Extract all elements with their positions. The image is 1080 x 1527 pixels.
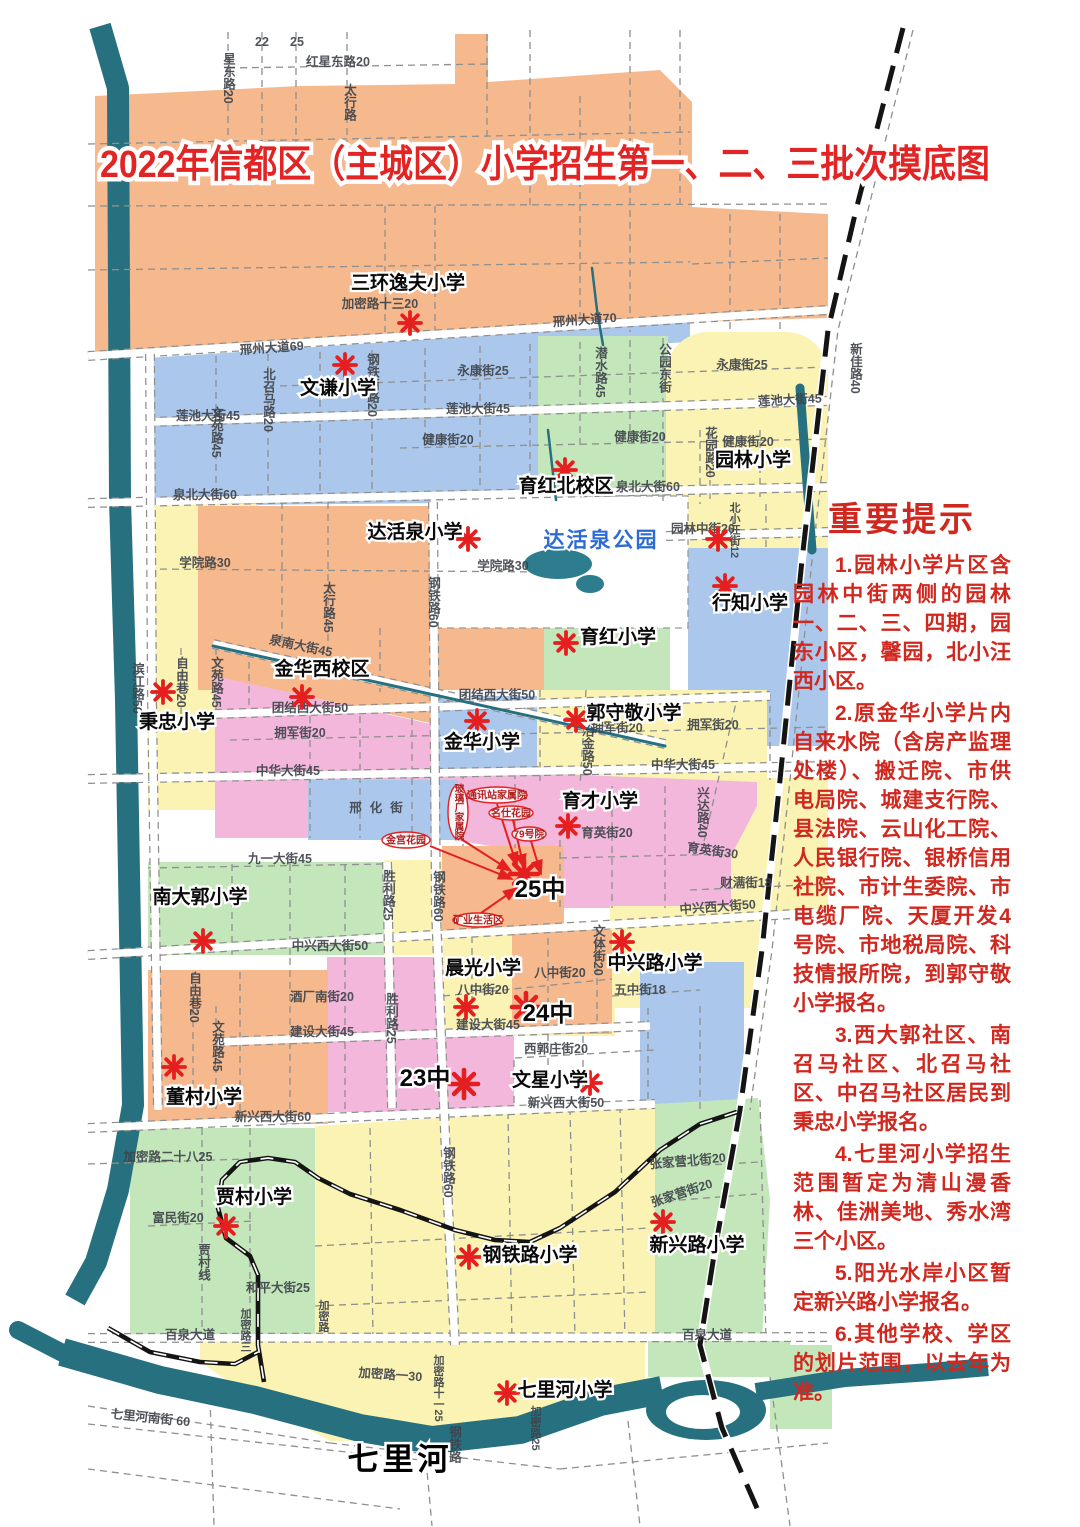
river-label: 七里河 bbox=[348, 1442, 453, 1477]
street-label: 兴达路40 bbox=[695, 785, 709, 837]
street-label: 红星东路20 bbox=[306, 54, 370, 69]
road-minor bbox=[210, 1398, 214, 1526]
road-minor bbox=[628, 1421, 640, 1526]
notice-paragraph: 3.西大郭社区、南召马社区、北召马社区、中召马社区居民到秉忠小学报名。 bbox=[793, 1021, 1011, 1137]
street-label: 加密路三 bbox=[239, 1307, 253, 1352]
compound-label: 名仕花园 bbox=[491, 807, 531, 820]
street-label: 学院路30 bbox=[179, 555, 230, 570]
street-label: 八中街20 bbox=[533, 965, 585, 980]
school-label: 晨光小学 bbox=[445, 956, 521, 979]
street-label: 育英街20 bbox=[581, 825, 632, 840]
street-label: 太行路 bbox=[342, 82, 357, 121]
road-minor bbox=[560, 1443, 828, 1469]
street-label: 莲池大街45 bbox=[446, 401, 510, 416]
street-label: 拥军街20 bbox=[687, 717, 738, 732]
school-label: 育红小学 bbox=[580, 625, 656, 648]
notice-panel: 重要提示 1.园林小学片区含园林中街两侧的园林一、二、三、四期，园东小区，馨园，… bbox=[793, 492, 1011, 1410]
park-pond bbox=[576, 575, 604, 593]
street-label: 拥军街20 bbox=[274, 725, 325, 740]
school-label: 育才小学 bbox=[562, 789, 638, 812]
compound-label: 金宫花园 bbox=[385, 834, 426, 847]
notice-paragraph: 2.原金华小学片内自来水院（含房产监理处楼）、搬迁院、市供电局院、城建支行院、县… bbox=[793, 699, 1011, 1018]
street-label: 百泉大道 bbox=[682, 1327, 733, 1342]
school-label: 文星小学 bbox=[512, 1068, 588, 1091]
notice-paragraph: 1.园林小学片区含园林中街两侧的园林一、二、三、四期，园东小区，馨园，北小汪西小… bbox=[793, 551, 1011, 696]
school-label: 三环逸夫小学 bbox=[351, 271, 465, 294]
map-page: 星东路202225红星东路20太行路加密路十三20邢州大道69邢州大道70新佳路… bbox=[0, 0, 1080, 1527]
street-label: 加密路十三20 bbox=[341, 296, 418, 311]
street-label: 建设大街45 bbox=[290, 1024, 354, 1039]
street-label: 团结西大街50 bbox=[459, 687, 535, 702]
zone-north-district bbox=[95, 34, 828, 354]
notice-paragraph: 6.其他学校、学区的划片范围，以去年为准。 bbox=[793, 1320, 1011, 1407]
zone-gangtielu-district bbox=[315, 1104, 655, 1340]
street-label: 财满街18 bbox=[719, 875, 771, 890]
compound-label: 通讯站家属院 bbox=[467, 789, 527, 802]
school-label: 行知小学 bbox=[711, 591, 788, 614]
school-label: 23中 bbox=[400, 1065, 451, 1092]
street-label: 团结西大街50 bbox=[272, 700, 348, 715]
street-label: 泉北大街60 bbox=[615, 479, 680, 494]
street-label: 健康街20 bbox=[614, 429, 665, 444]
street-label: 星东路20 bbox=[221, 52, 235, 103]
school-label: 秉忠小学 bbox=[139, 710, 215, 733]
park-label: 达活泉公园 bbox=[544, 528, 659, 552]
school-label: 南大郭小学 bbox=[152, 885, 247, 908]
school-label: 郭守敬小学 bbox=[586, 701, 681, 724]
street-label: 中华大街45 bbox=[651, 757, 715, 772]
street-label: 文苑路45 bbox=[210, 1019, 225, 1071]
street-label: 中兴西大街50 bbox=[292, 938, 368, 953]
school-label: 中兴路小学 bbox=[607, 951, 702, 974]
street-label: 北小汪街12 bbox=[728, 501, 742, 559]
street-label: 百泉大道 bbox=[165, 1327, 216, 1342]
school-label: 贾村小学 bbox=[216, 1185, 292, 1208]
street-label: 文体街20 bbox=[591, 923, 606, 975]
street-label: 五中街18 bbox=[614, 982, 665, 997]
school-label: 育红北校区 bbox=[518, 474, 613, 497]
school-label: 文谦小学 bbox=[300, 376, 376, 399]
street-label: 学院路30 bbox=[477, 558, 528, 573]
street-label: 富民街20 bbox=[152, 1210, 203, 1225]
street-label: 泉北大街60 bbox=[172, 487, 237, 502]
street-label: 22 bbox=[255, 35, 269, 49]
notice-paragraph: 4.七里河小学招生范围暂定为清山漫香林、佳洲美地、秀水湾三个小区。 bbox=[793, 1140, 1011, 1256]
school-label: 金华小学 bbox=[443, 730, 520, 753]
school-label: 园林小学 bbox=[715, 448, 791, 471]
compound-label: 79号院 bbox=[513, 828, 544, 841]
street-label: 钢铁路60 bbox=[431, 869, 445, 921]
street-label: 七里河南街 60 bbox=[110, 1406, 191, 1429]
notice-body: 1.园林小学片区含园林中街两侧的园林一、二、三、四期，园东小区，馨园，北小汪西小… bbox=[793, 551, 1011, 1407]
zone-xinxinglu-district bbox=[655, 1098, 770, 1340]
street-label: 八中街20 bbox=[456, 982, 508, 997]
street-label: 邢化街 bbox=[349, 800, 411, 815]
street-label: 莲池大街45 bbox=[176, 408, 240, 423]
street-label: 永康街25 bbox=[456, 363, 508, 378]
street-label: 贾村线 bbox=[196, 1242, 210, 1281]
street-label: 加密路 bbox=[317, 1298, 331, 1333]
street-label: 公园东街 bbox=[657, 343, 672, 394]
street-label: 冶金路50 bbox=[580, 723, 595, 775]
street-label: 钢铁路60 bbox=[426, 575, 440, 627]
school-label: 董村小学 bbox=[166, 1085, 242, 1108]
school-label: 达活泉小学 bbox=[367, 520, 462, 543]
street-label: 健康街20 bbox=[422, 432, 473, 447]
street-label: 新兴西大街60 bbox=[235, 1109, 311, 1124]
street-label: 北召马路20 bbox=[261, 367, 275, 432]
river-island bbox=[666, 1395, 740, 1429]
street-label: 和平大街25 bbox=[245, 1280, 310, 1295]
street-label: 加密路十一25 bbox=[432, 1353, 446, 1422]
street-label: 酒厂南街20 bbox=[290, 989, 354, 1004]
street-label: 新佳路40 bbox=[848, 341, 862, 393]
school-label: 新兴路小学 bbox=[649, 1233, 744, 1256]
street-label: 健康街20 bbox=[722, 434, 773, 449]
street-label: 钢铁路60 bbox=[441, 1145, 455, 1197]
street-label: 潜水路45 bbox=[593, 345, 607, 397]
park-pond bbox=[524, 549, 592, 579]
notice-heading: 重要提示 bbox=[793, 492, 1011, 541]
street-label: 25 bbox=[290, 35, 304, 49]
school-label: 金华西校区 bbox=[273, 657, 369, 680]
street-label: 新兴西大街50 bbox=[528, 1095, 604, 1110]
notice-paragraph: 5.阳光水岸小区暂定新兴路小学报名。 bbox=[793, 1259, 1011, 1317]
street-label: 九一大街45 bbox=[247, 851, 312, 866]
street-label: 加密路二十八25 bbox=[123, 1149, 213, 1164]
street-label: 永康街25 bbox=[715, 357, 767, 372]
school: 文星小学 bbox=[512, 1068, 601, 1094]
street-label: 滨江路50 bbox=[130, 661, 144, 713]
street-label: 太行路45 bbox=[321, 580, 336, 632]
street-label: 自由巷20 bbox=[174, 655, 189, 707]
street-label: 西郭庄街20 bbox=[524, 1041, 588, 1056]
school-label: 钢铁路小学 bbox=[482, 1243, 577, 1266]
street-label: 自由巷20 bbox=[187, 970, 202, 1022]
compound-label: 矿业生活区 bbox=[453, 914, 503, 927]
street-label: 加密路25 bbox=[529, 1404, 543, 1451]
street-label: 文苑路45 bbox=[209, 655, 224, 707]
compound-label: 玻璃厂家属院 bbox=[453, 783, 465, 842]
street-label: 胜利路25 bbox=[381, 868, 395, 920]
street-label: 中华大街45 bbox=[256, 763, 320, 778]
zone-under-park bbox=[430, 628, 544, 690]
street-label: 胜利路25 bbox=[384, 991, 398, 1043]
zone-south-green-strip bbox=[648, 1338, 790, 1377]
map-title: 2022年信都区（主城区）小学招生第一、二、三批次摸底图 bbox=[100, 143, 990, 186]
school-label: 25中 bbox=[515, 876, 566, 903]
school-label: 24中 bbox=[523, 1000, 574, 1027]
school-label: 七里河小学 bbox=[517, 1378, 612, 1401]
